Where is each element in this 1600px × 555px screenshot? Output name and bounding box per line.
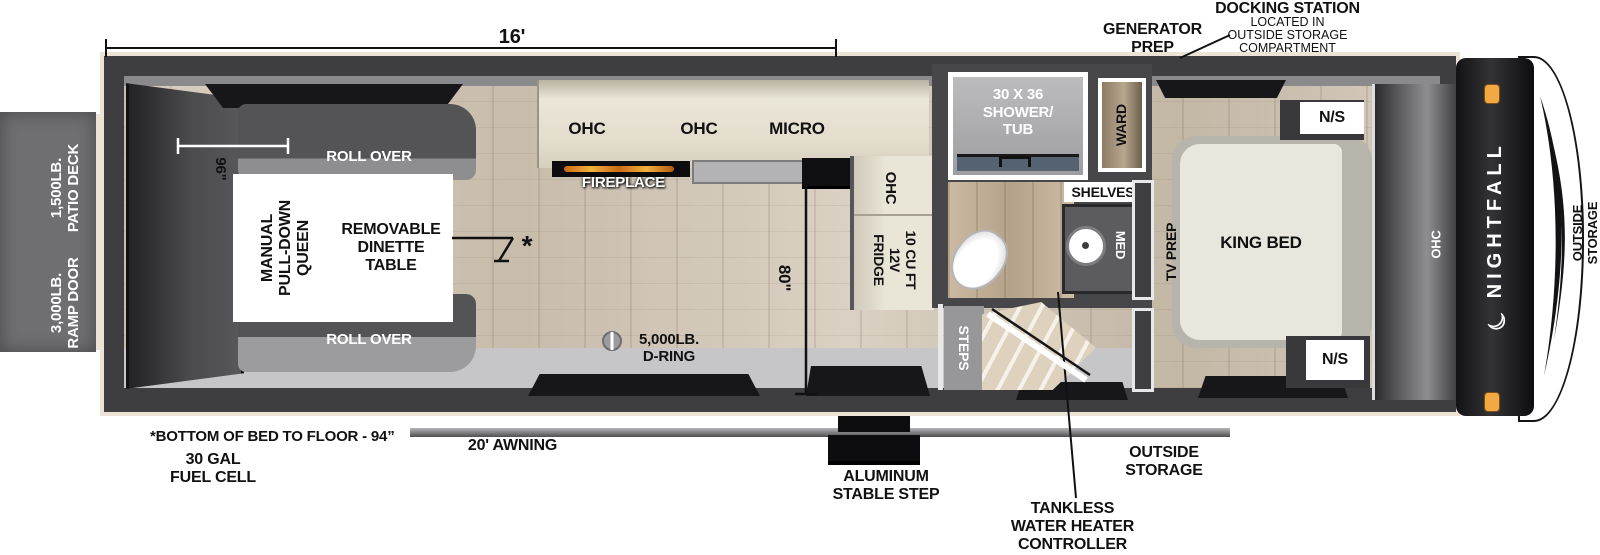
stair-railing-black xyxy=(992,309,1090,375)
table-glyph-leg xyxy=(499,238,513,261)
tankless-leader-line xyxy=(1058,292,1076,498)
floorplan-diagram: 1,500LB. PATIO DECK 3,000LB. RAMP DOOR R… xyxy=(0,0,1600,555)
docking-leader-line xyxy=(1180,35,1230,58)
dimension-lines xyxy=(0,0,1600,555)
stair-railing-white xyxy=(988,314,1086,380)
nose-swoosh-large xyxy=(1540,96,1562,376)
